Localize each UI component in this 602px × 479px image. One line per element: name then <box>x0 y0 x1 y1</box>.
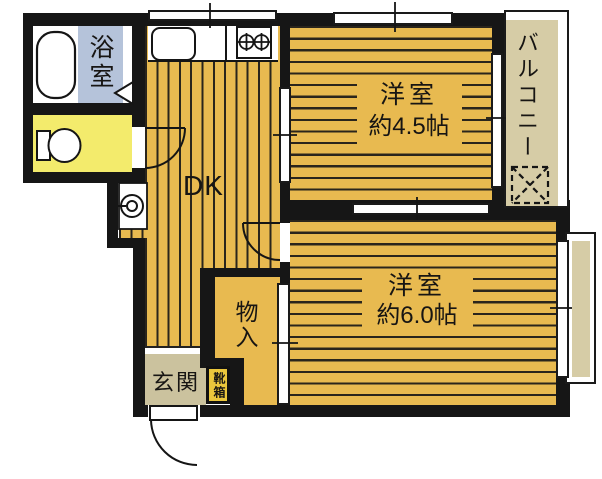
drying-area-icon <box>512 167 548 203</box>
room-45-name: 洋室 <box>349 79 469 111</box>
bathtub <box>37 32 75 98</box>
entrance-label: 玄関 <box>146 365 206 397</box>
balcony-label: バルコニー <box>517 26 542 166</box>
dk-60-door-swing <box>243 223 280 260</box>
room-60-size: 約6.0帖 <box>352 301 482 331</box>
dk-label: DK <box>183 170 224 202</box>
entrance-door-swing <box>150 406 197 465</box>
room-45-size: 約4.5帖 <box>349 111 469 143</box>
bathroom-label: 浴室 <box>88 31 118 95</box>
storage-label: 物入 <box>237 297 262 353</box>
toilet-bowl <box>49 129 81 162</box>
floor-plan: 浴室 DK 洋室 約4.5帖 洋室 約6.0帖 バルコニー 物入 玄関 靴箱 <box>0 0 602 479</box>
room-60-name: 洋室 <box>352 271 482 301</box>
room-45-label: 洋室 約4.5帖 <box>349 79 469 143</box>
shoe-box-label: 靴箱 <box>208 370 228 402</box>
room-60-label: 洋室 約6.0帖 <box>352 271 482 331</box>
toilet-door-swing <box>145 128 185 168</box>
kitchen-sink <box>152 28 195 60</box>
